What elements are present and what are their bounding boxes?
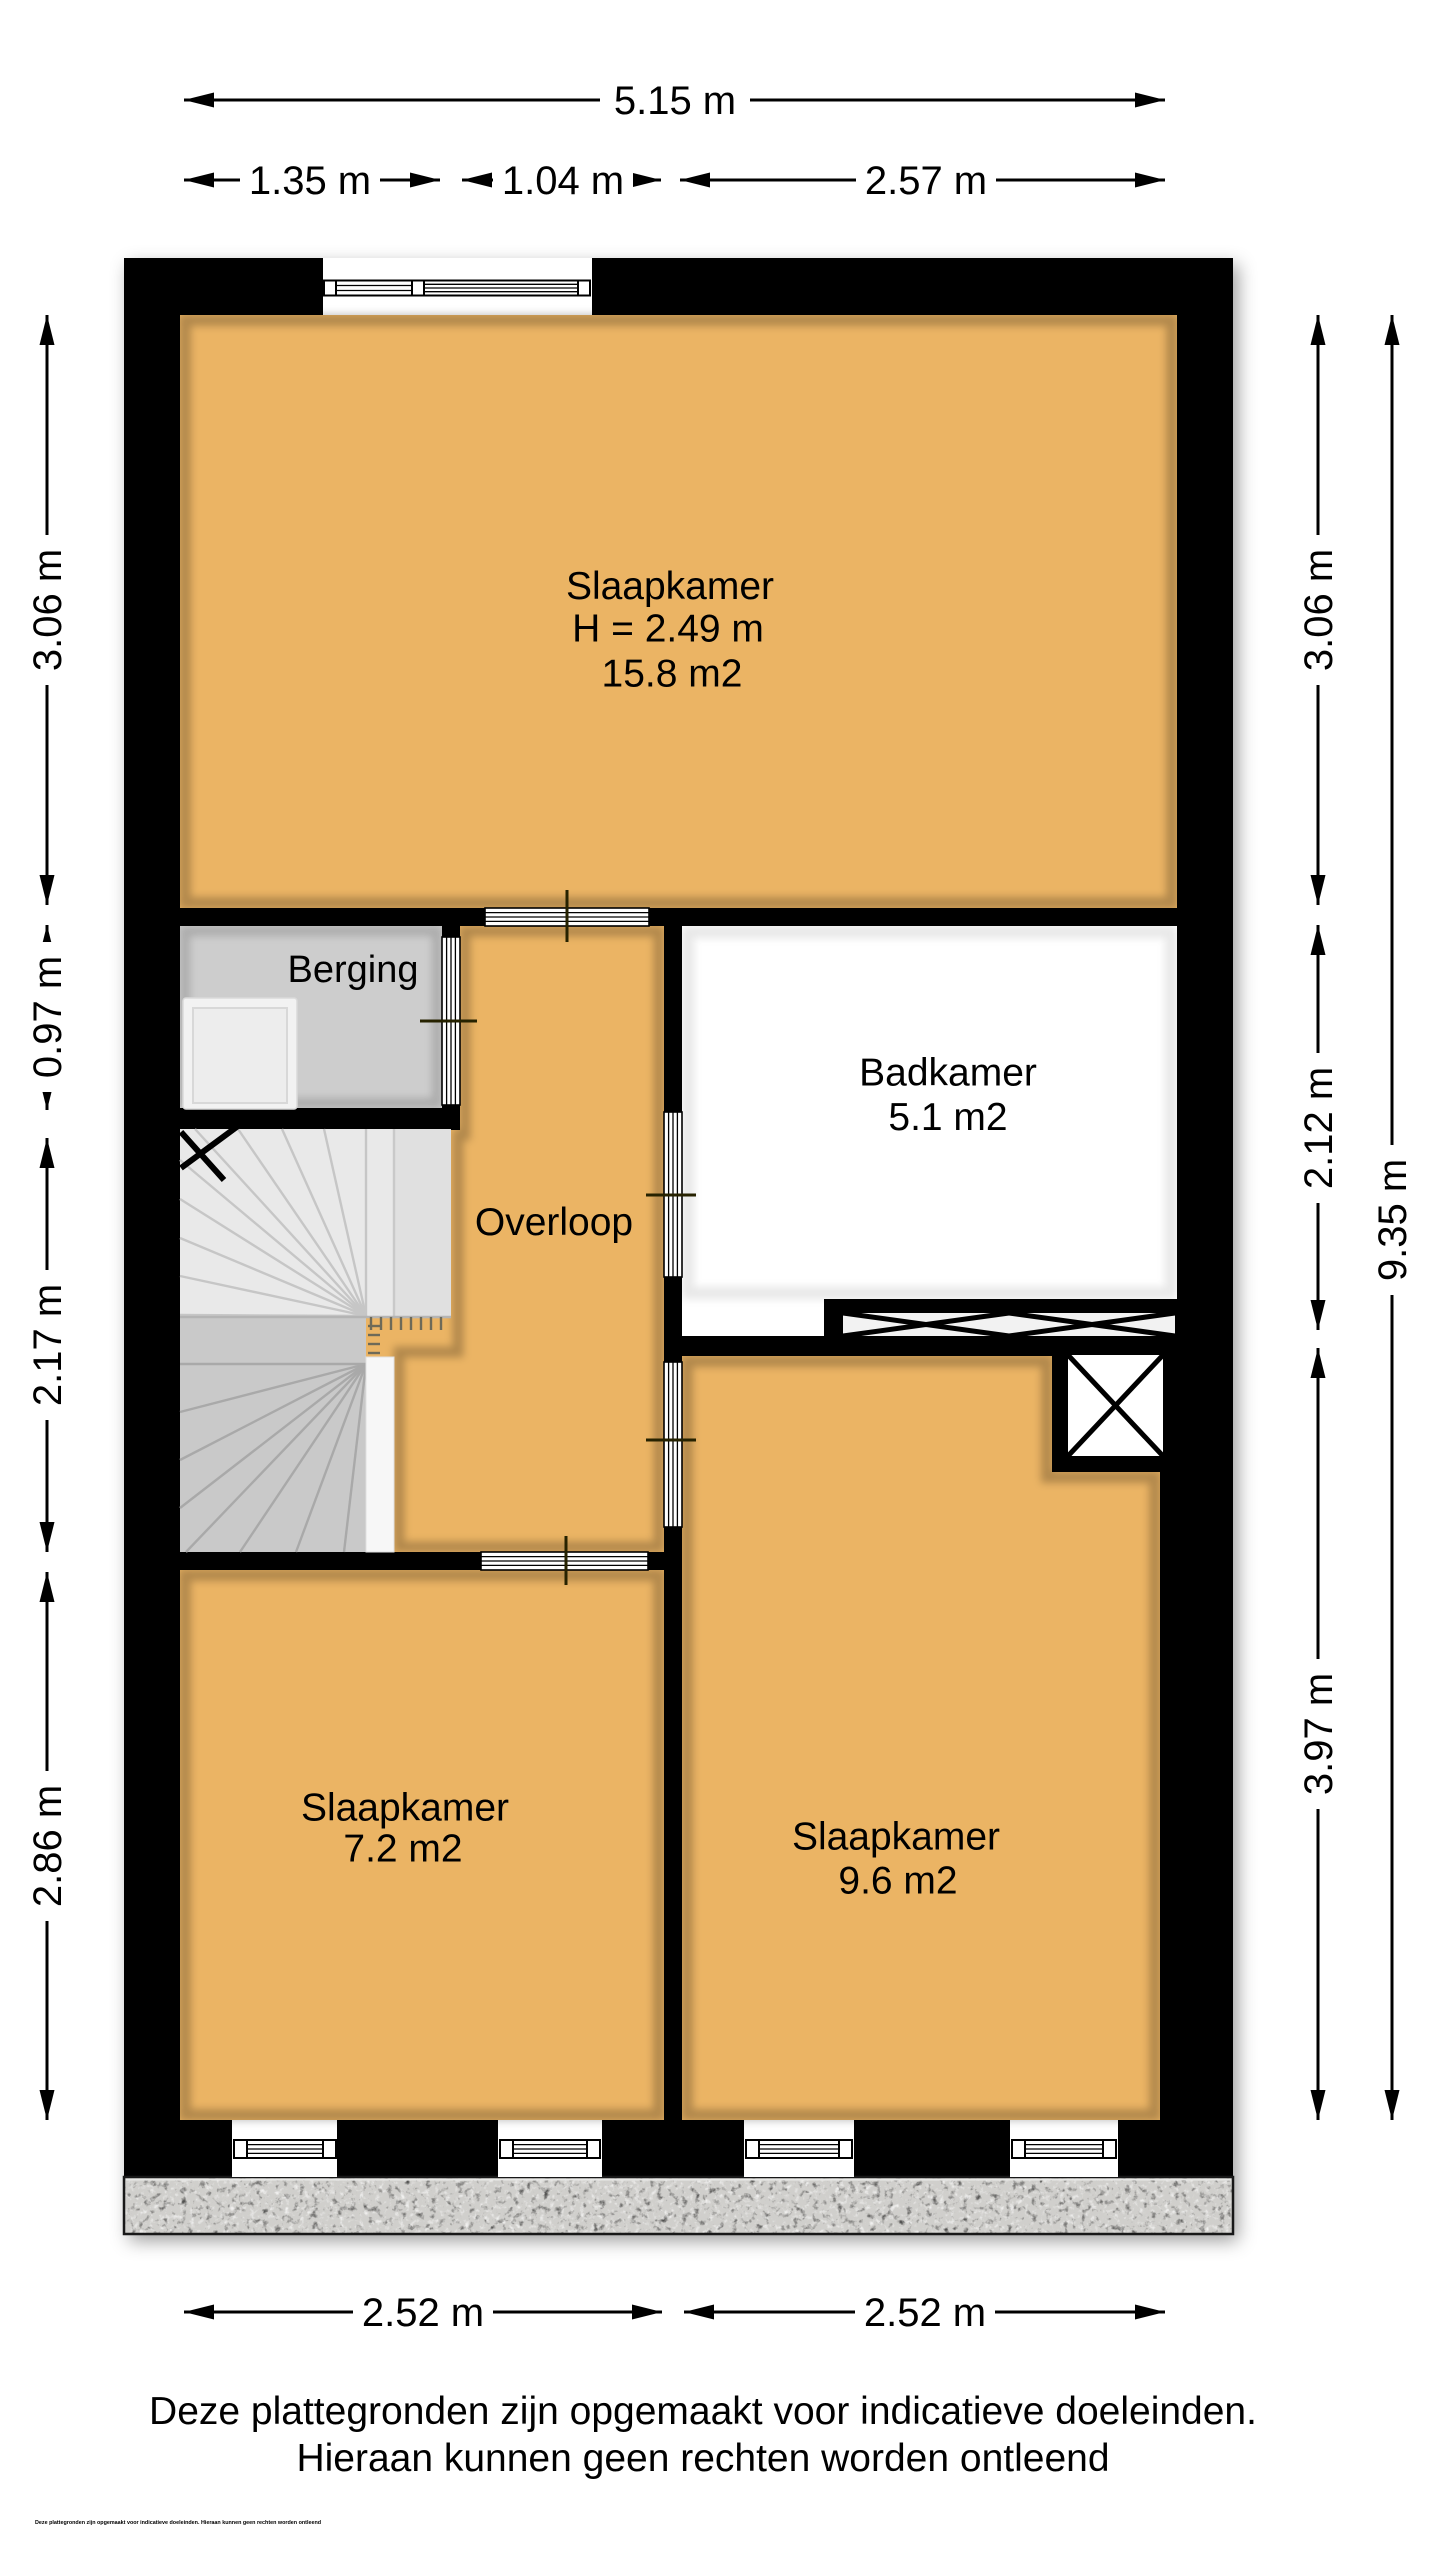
- svg-text:Slaapkamer: Slaapkamer: [792, 1816, 1000, 1859]
- svg-text:3.97 m: 3.97 m: [1297, 1673, 1341, 1795]
- svg-text:2.57 m: 2.57 m: [865, 159, 987, 203]
- svg-text:Slaapkamer: Slaapkamer: [301, 1787, 509, 1830]
- svg-text:Deze plattegronden zijn opgema: Deze plattegronden zijn opgemaakt voor i…: [35, 2520, 321, 2526]
- svg-text:Hieraan kunnen geen rechten wo: Hieraan kunnen geen rechten worden ontle…: [296, 2437, 1109, 2480]
- svg-text:H = 2.49 m: H = 2.49 m: [572, 608, 764, 651]
- svg-text:Overloop: Overloop: [475, 1201, 633, 1244]
- svg-text:2.17 m: 2.17 m: [26, 1284, 70, 1406]
- svg-text:0.97 m: 0.97 m: [26, 956, 70, 1078]
- svg-text:2.52 m: 2.52 m: [362, 2291, 484, 2335]
- svg-text:15.8 m2: 15.8 m2: [602, 653, 743, 696]
- svg-text:5.1 m2: 5.1 m2: [888, 1096, 1007, 1139]
- svg-text:1.04 m: 1.04 m: [502, 159, 624, 203]
- svg-text:3.06 m: 3.06 m: [26, 549, 70, 671]
- svg-text:Badkamer: Badkamer: [859, 1052, 1037, 1095]
- svg-text:9.35 m: 9.35 m: [1371, 1159, 1415, 1281]
- svg-text:9.6 m2: 9.6 m2: [838, 1860, 957, 1903]
- svg-text:7.2 m2: 7.2 m2: [343, 1828, 462, 1871]
- svg-text:Deze plattegronden zijn opgema: Deze plattegronden zijn opgemaakt voor i…: [149, 2390, 1257, 2433]
- svg-text:Berging: Berging: [288, 949, 419, 991]
- svg-text:Slaapkamer: Slaapkamer: [566, 565, 774, 608]
- svg-text:1.35 m: 1.35 m: [249, 159, 371, 203]
- svg-text:2.52 m: 2.52 m: [864, 2291, 986, 2335]
- svg-text:2.12 m: 2.12 m: [1297, 1067, 1341, 1189]
- svg-text:2.86 m: 2.86 m: [26, 1785, 70, 1907]
- svg-text:5.15 m: 5.15 m: [614, 79, 736, 123]
- svg-text:3.06 m: 3.06 m: [1297, 549, 1341, 671]
